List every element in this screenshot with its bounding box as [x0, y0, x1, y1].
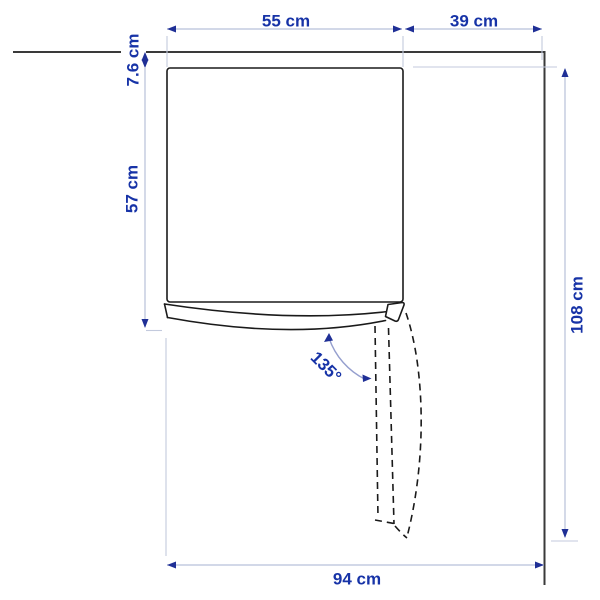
open-door-front-curve: [406, 313, 421, 537]
dimension-total-depth: 108 cm: [413, 67, 587, 541]
door-left-cap: [165, 304, 168, 318]
dimension-total-width: 94 cm: [166, 338, 544, 589]
appliance-body: [167, 68, 403, 302]
dim-arrow-55-left: [167, 26, 176, 33]
door-open-dashed: [375, 313, 421, 538]
total-depth-label: 108 cm: [568, 276, 587, 334]
swing-arc-arrow-end: [363, 375, 372, 383]
dimension-body-depth: 57 cm: [123, 68, 163, 331]
dim-arrow-39-right: [533, 26, 542, 33]
dim-arrow-39-left: [405, 26, 414, 33]
swing-arc-arrow-start: [324, 333, 333, 342]
dim-arrow-108-down: [562, 529, 569, 538]
door-swing-arc: 135°: [307, 333, 372, 386]
dim-arrow-108-up: [562, 68, 569, 77]
door-front-top-curve: [165, 304, 389, 316]
open-door-inner-edge: [389, 328, 395, 524]
dimension-body-width: 55 cm: [167, 12, 403, 68]
open-door-bottom-cap-inner: [375, 520, 394, 524]
body-width-label: 55 cm: [262, 12, 310, 31]
door-angle-label: 135°: [307, 348, 345, 386]
dim-arrow-7-6-down: [142, 60, 149, 69]
dimension-diagram: 135° 55 cm 39 cm 7.6 cm: [0, 0, 600, 600]
dim-arrow-94-left: [167, 562, 176, 569]
door-hinge: [386, 303, 405, 322]
dim-arrow-57-down: [142, 319, 149, 328]
dim-arrow-94-right: [535, 562, 544, 569]
wall-gap-label: 7.6 cm: [124, 34, 143, 87]
open-door-back-edge: [375, 326, 378, 518]
appliance-body-outline: [167, 68, 403, 302]
dim-arrow-55-right: [393, 26, 402, 33]
dim-arrow-7-6-up: [142, 52, 149, 61]
door-front-bottom-curve: [168, 318, 386, 330]
total-width-label: 94 cm: [333, 570, 381, 589]
door-closed: [165, 303, 405, 330]
right-clearance-label: 39 cm: [450, 12, 498, 31]
diagram-canvas: 135° 55 cm 39 cm 7.6 cm: [0, 0, 600, 600]
open-door-bottom-cap-outer: [395, 526, 407, 538]
body-depth-label: 57 cm: [123, 165, 142, 213]
